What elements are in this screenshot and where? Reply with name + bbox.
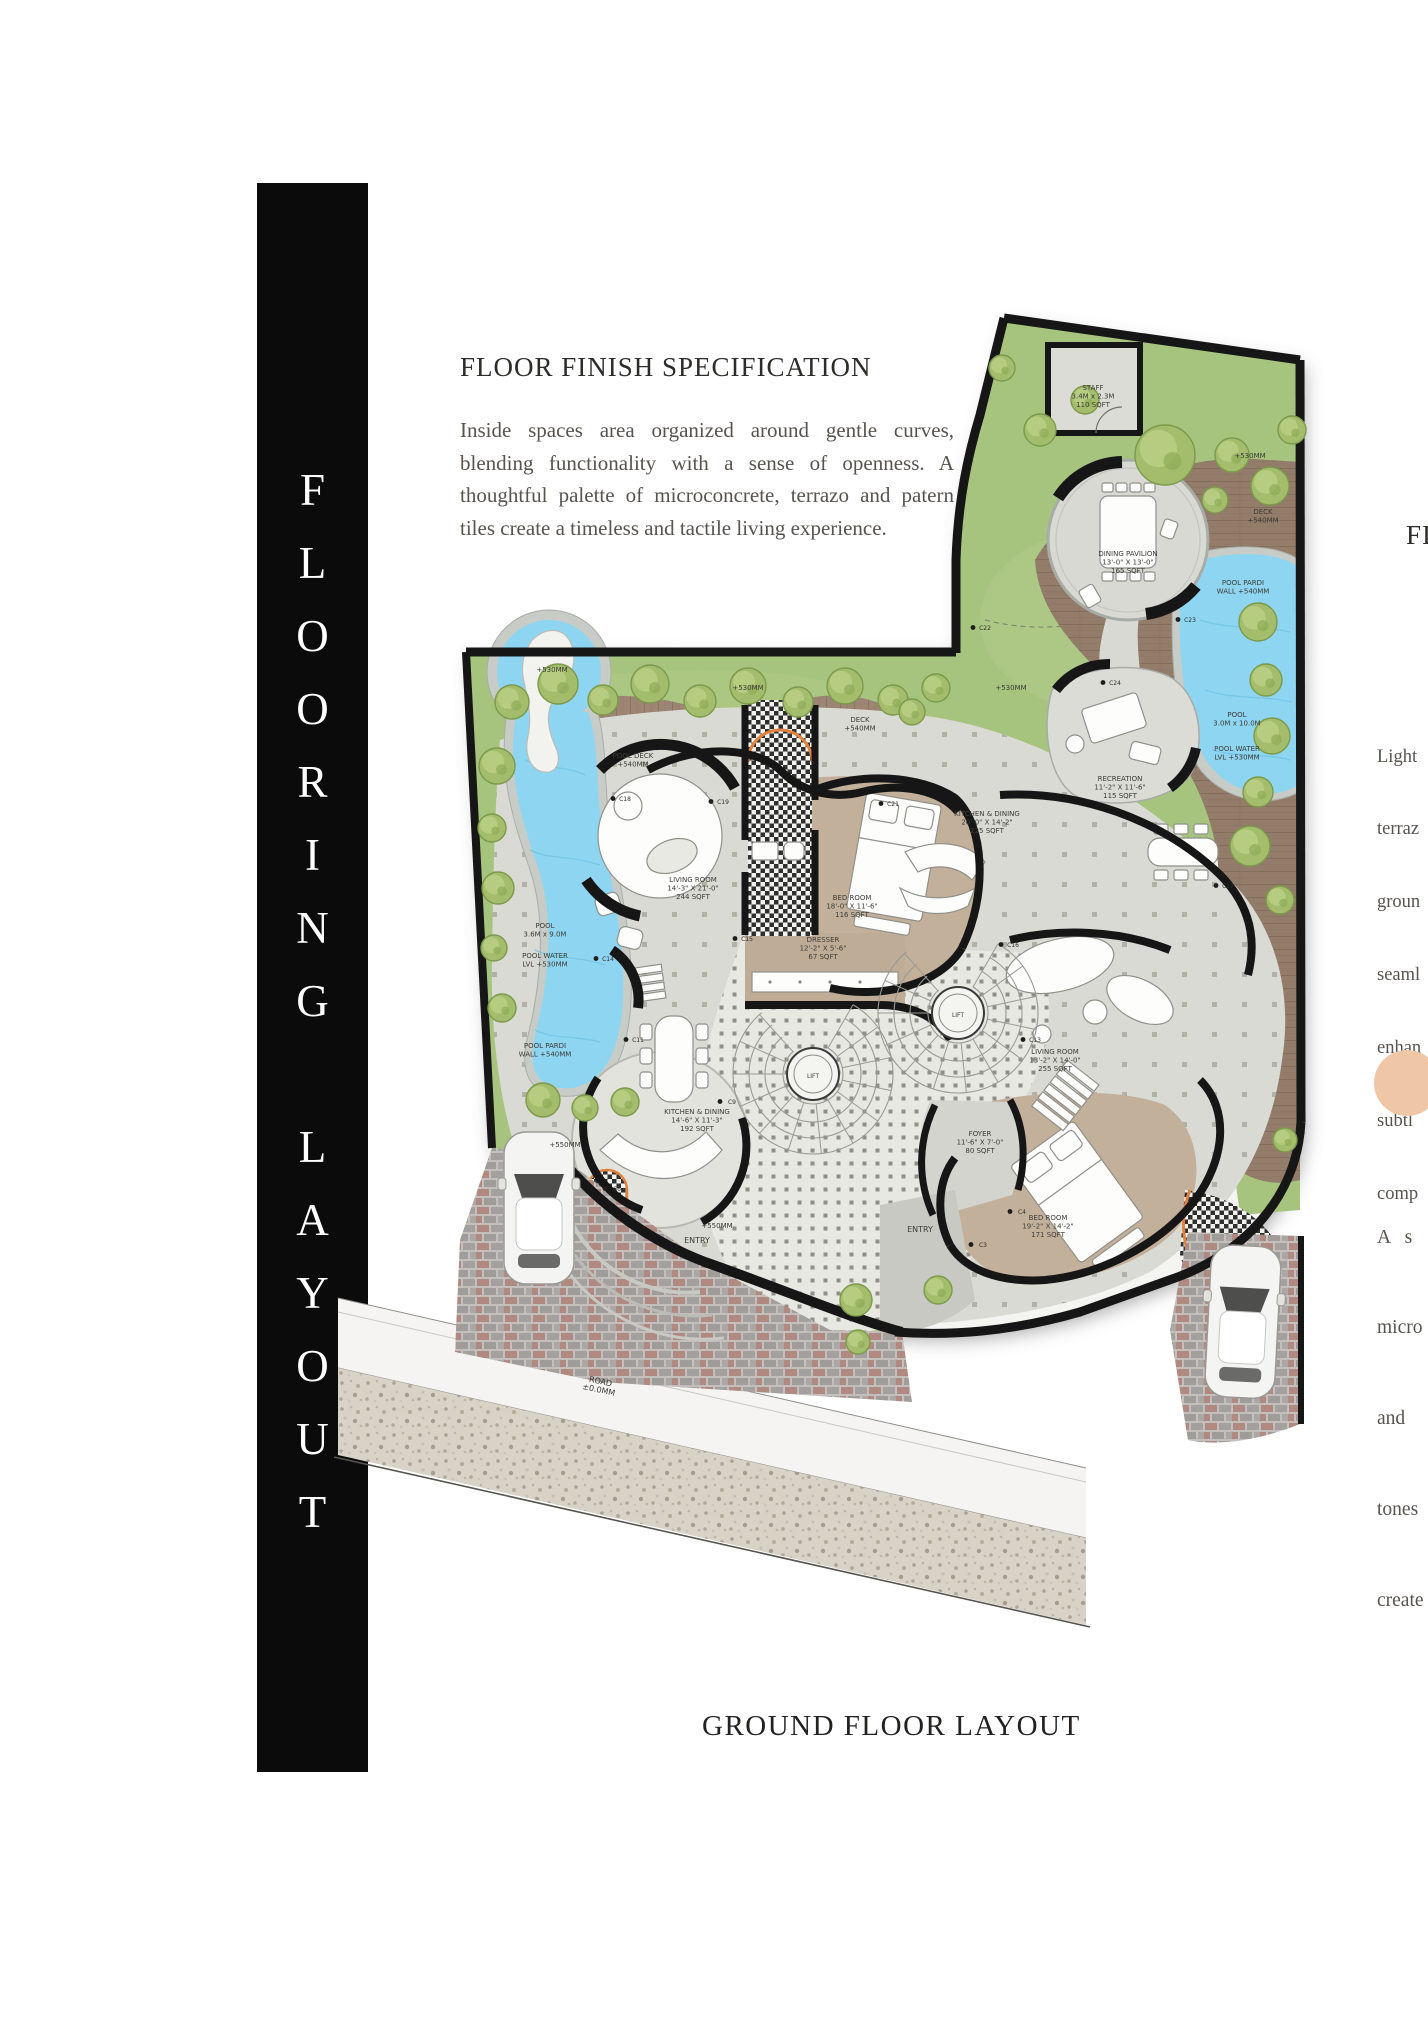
tree-icon [479, 748, 515, 784]
column-marker: C19 [717, 799, 729, 806]
tree-icon [526, 1083, 560, 1117]
plan-label: LIFT [807, 1073, 819, 1080]
column-marker: C24 [1109, 680, 1121, 687]
column-marker-dot [1101, 680, 1106, 685]
ground-floor-plan: STAFF3.4M x 2.3M110 SQFTDINING PAVILION1… [0, 0, 1428, 2018]
dining-table-left [655, 1016, 693, 1102]
tree-icon [684, 685, 716, 717]
column-marker-dot [1214, 883, 1219, 888]
tree-icon [1239, 603, 1277, 641]
plan-label: +530MM [995, 684, 1026, 692]
column-marker-dot [594, 956, 599, 961]
plan-label: +530MM [732, 684, 763, 692]
column-marker-dot [603, 1186, 608, 1191]
tree-icon [1251, 467, 1289, 505]
column-marker: C13 [1029, 1037, 1041, 1044]
column-marker: C3 [979, 1242, 987, 1249]
tree-icon [840, 1284, 872, 1316]
column-marker: C9 [728, 1099, 736, 1106]
tree-icon [1230, 826, 1270, 866]
tree-icon [1024, 414, 1056, 446]
tree-icon [611, 1088, 639, 1116]
page: FLOORING LAYOUT FLOOR FINISH SPECIFICATI… [0, 0, 1428, 2018]
column-marker: C21 [887, 801, 899, 808]
column-marker: C15 [741, 936, 753, 943]
tree-icon [1243, 777, 1273, 807]
column-marker-dot [1008, 1209, 1013, 1214]
tree-icon [481, 935, 507, 961]
tree-icon [924, 1276, 952, 1304]
tree-icon [989, 355, 1015, 381]
column-marker-dot [999, 942, 1004, 947]
tree-icon [1135, 425, 1195, 485]
column-marker-dot [969, 1242, 974, 1247]
tree-icon [783, 687, 813, 717]
tree-icon [922, 674, 950, 702]
column-marker: C17 [1222, 883, 1234, 890]
tree-icon [495, 685, 529, 719]
plan-label: POOL PARDIWALL +540MM [519, 1042, 572, 1059]
plan-label: +550MM [701, 1222, 732, 1230]
tree-icon [572, 1095, 598, 1121]
car [1198, 1244, 1288, 1400]
tree-icon [1202, 487, 1228, 513]
plan-label: LIFT [952, 1012, 964, 1019]
column-marker-dot [718, 1099, 723, 1104]
column-marker-dot [709, 799, 714, 804]
car [498, 1132, 580, 1284]
column-marker: C22 [979, 625, 991, 632]
column-marker: C18 [619, 796, 631, 803]
tree-icon [1266, 886, 1294, 914]
tree-icon [846, 1330, 870, 1354]
tree-icon [631, 665, 669, 703]
plan-label: POOL DECK+540MM [613, 752, 654, 769]
tree-icon [1250, 664, 1282, 696]
plan-label: POOL PARDIWALL +540MM [1217, 579, 1270, 596]
tree-icon [588, 685, 618, 715]
column-marker: C11 [632, 1037, 644, 1044]
column-marker: C4 [1018, 1209, 1026, 1216]
column-marker-dot [971, 625, 976, 630]
tree-icon [478, 814, 506, 842]
column-marker-dot [611, 796, 616, 801]
tree-icon [482, 872, 514, 904]
column-marker: C16 [1007, 942, 1019, 949]
column-marker-dot [733, 936, 738, 941]
column-marker: C23 [1184, 617, 1196, 624]
plan-label: POOL WATERLVL +530MM [1214, 745, 1260, 762]
tree-icon [827, 668, 863, 704]
column-marker-dot [879, 801, 884, 806]
tree-icon [1278, 416, 1306, 444]
column-marker-dot [1176, 617, 1181, 622]
column-marker-dot [624, 1037, 629, 1042]
plan-label: +530MM [536, 666, 567, 674]
column-marker: C14 [602, 956, 614, 963]
tree-icon [488, 994, 516, 1022]
plan-label: ENTRY [684, 1236, 710, 1245]
plan-label: ENTRY [907, 1225, 933, 1234]
tree-icon [1273, 1128, 1297, 1152]
tree-icon [899, 699, 925, 725]
plan-label: POOL WATERLVL +530MM [522, 952, 568, 969]
plan-label: +530MM [1234, 452, 1265, 460]
column-marker: C6 [613, 1186, 621, 1193]
plan-label: +550MM [549, 1141, 580, 1149]
column-marker-dot [1021, 1037, 1026, 1042]
